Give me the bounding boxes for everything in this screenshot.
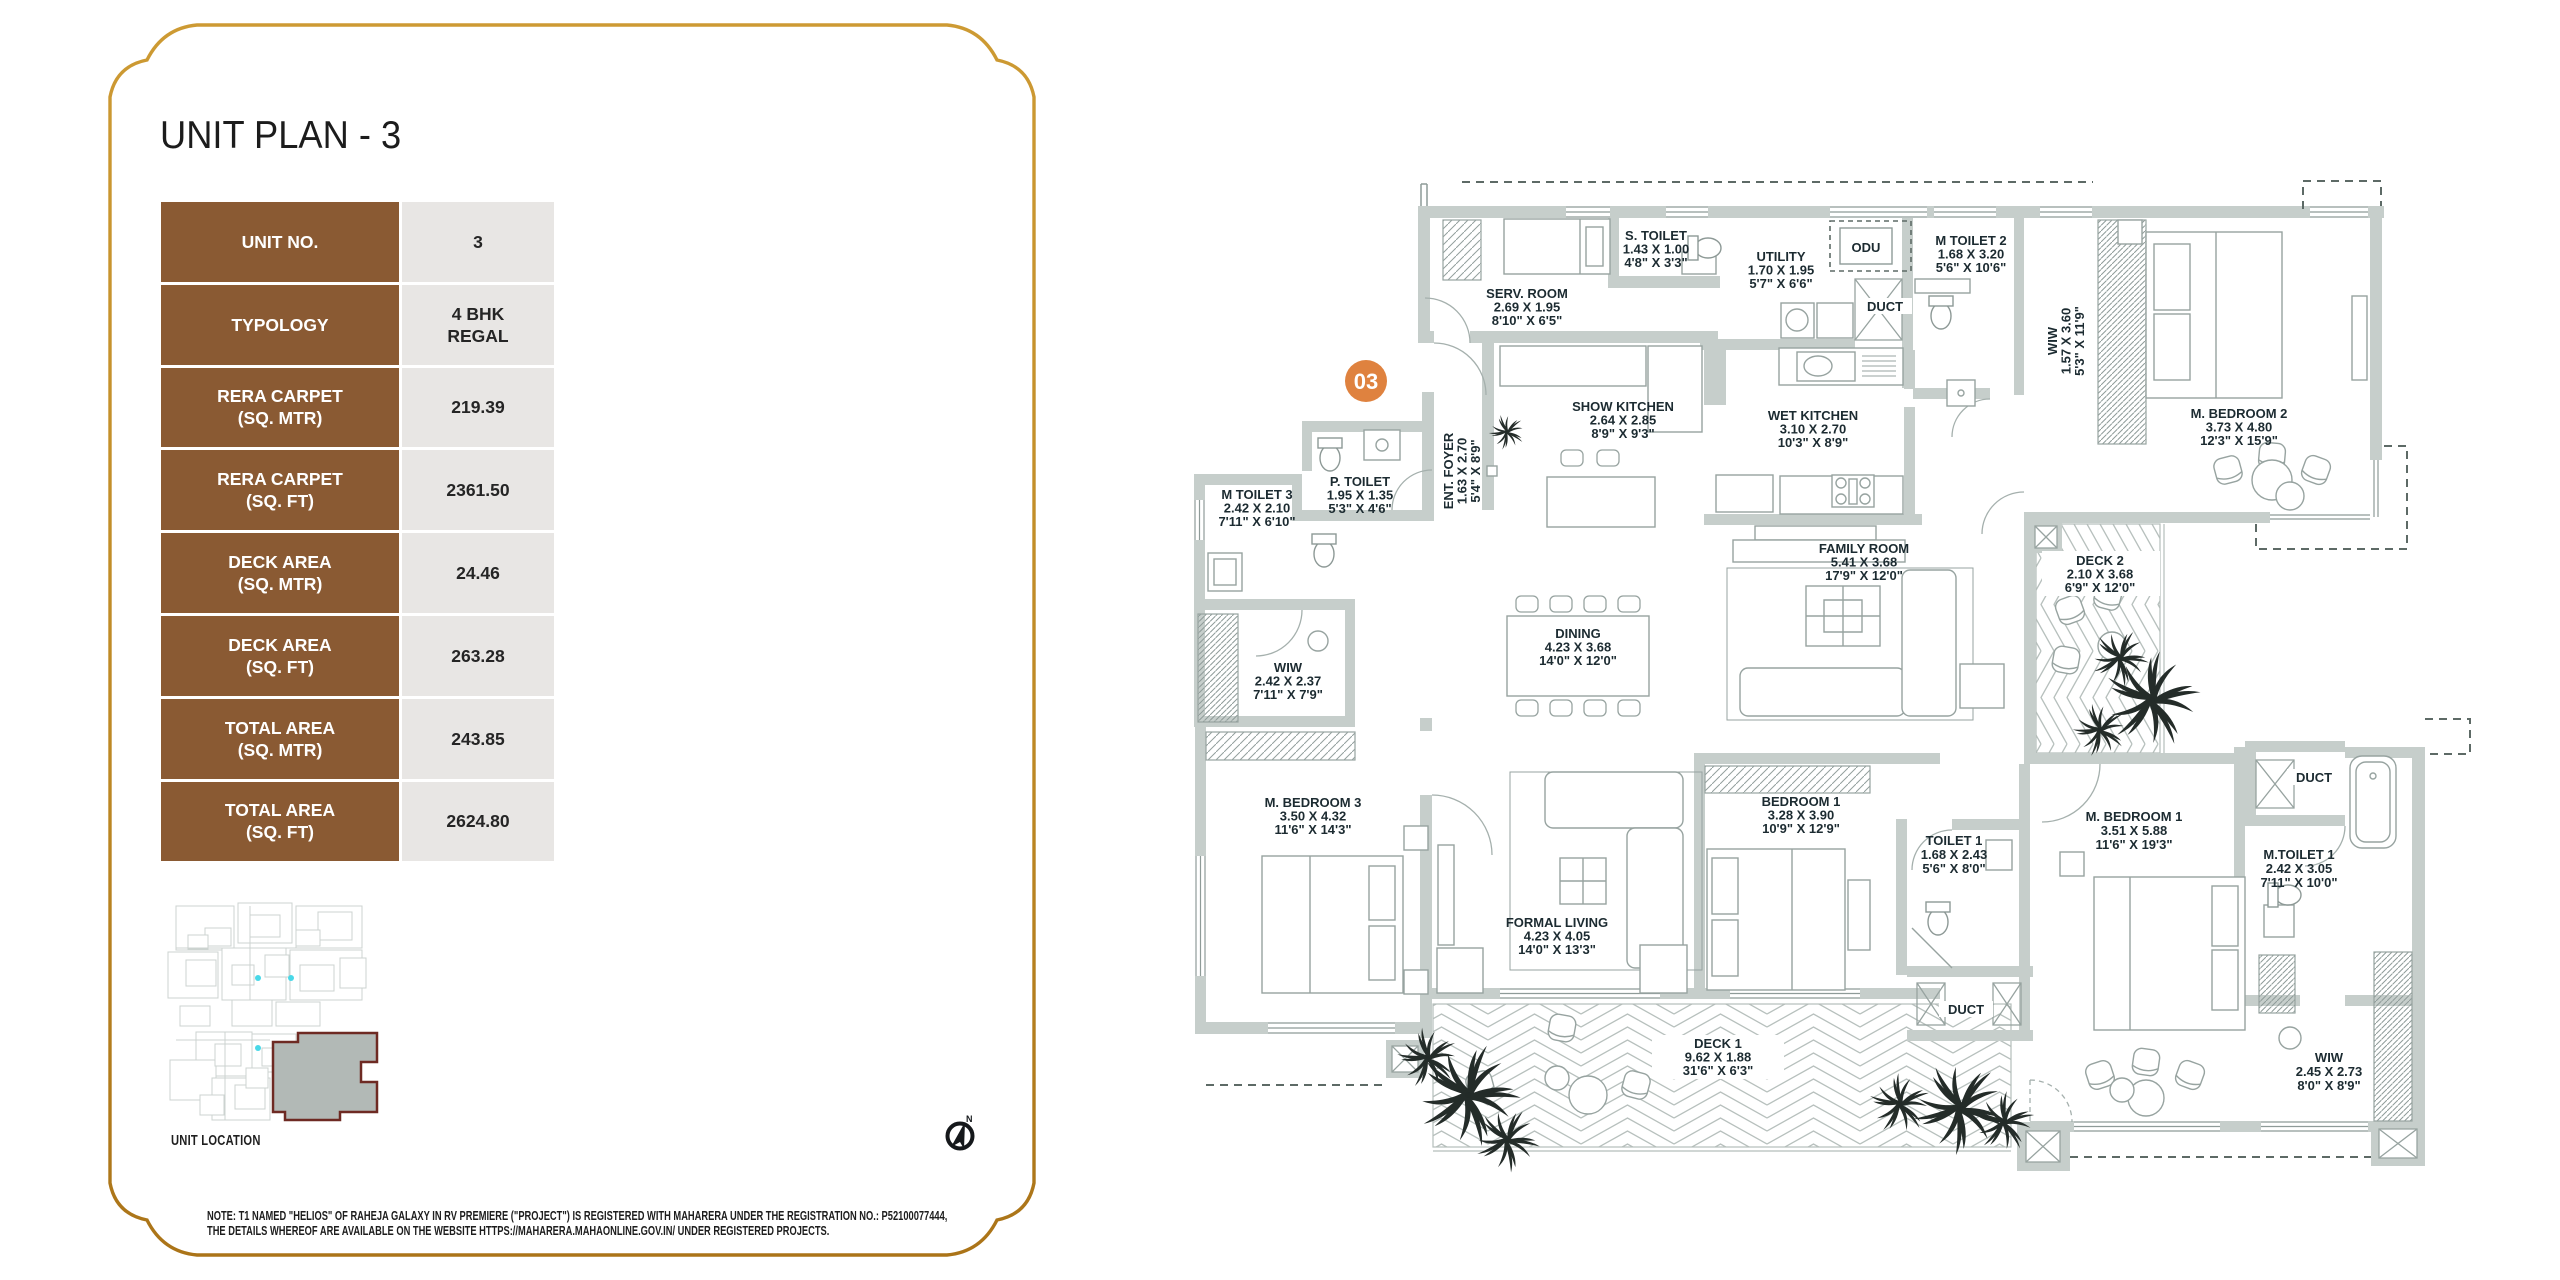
svg-text:8'10" X 6'5": 8'10" X 6'5" [1492, 313, 1563, 328]
svg-text:M. BEDROOM 1: M. BEDROOM 1 [2086, 809, 2183, 824]
svg-text:3.51 X 5.88: 3.51 X 5.88 [2101, 823, 2168, 838]
svg-text:5'6" X 8'0": 5'6" X 8'0" [1922, 861, 1985, 876]
svg-text:2.42 X 3.05: 2.42 X 3.05 [2266, 861, 2333, 876]
svg-text:DUCT: DUCT [1948, 1002, 1984, 1017]
svg-text:TOILET 1: TOILET 1 [1926, 833, 1983, 848]
svg-text:7'11" X 10'0": 7'11" X 10'0" [2260, 875, 2337, 890]
svg-text:7'11" X 6'10": 7'11" X 6'10" [1218, 514, 1295, 529]
svg-text:10'3" X 8'9": 10'3" X 8'9" [1778, 435, 1849, 450]
svg-text:8'9" X 9'3": 8'9" X 9'3" [1591, 426, 1654, 441]
svg-text:5'6" X 10'6": 5'6" X 10'6" [1936, 260, 2007, 275]
svg-text:03: 03 [1354, 369, 1378, 394]
svg-text:M.TOILET 1: M.TOILET 1 [2263, 847, 2334, 862]
svg-text:DUCT: DUCT [2296, 770, 2332, 785]
svg-text:14'0" X 12'0": 14'0" X 12'0" [1539, 653, 1617, 668]
svg-text:17'9" X 12'0": 17'9" X 12'0" [1825, 568, 1903, 583]
svg-text:5'3" X 4'6": 5'3" X 4'6" [1328, 501, 1391, 516]
svg-text:6'9" X 12'0": 6'9" X 12'0" [2065, 580, 2136, 595]
svg-text:5'7" X 6'6": 5'7" X 6'6" [1749, 276, 1812, 291]
svg-text:7'11" X 7'9": 7'11" X 7'9" [1253, 687, 1323, 702]
svg-text:WIW: WIW [2315, 1050, 2344, 1065]
svg-text:N: N [966, 1114, 973, 1124]
svg-text:10'9" X 12'9": 10'9" X 12'9" [1762, 821, 1840, 836]
svg-text:5'4" X 8'9": 5'4" X 8'9" [1468, 439, 1483, 502]
svg-text:1.68 X 2.43: 1.68 X 2.43 [1921, 847, 1988, 862]
svg-text:ODU: ODU [1852, 240, 1881, 255]
svg-text:11'6" X 14'3": 11'6" X 14'3" [1274, 822, 1351, 837]
svg-text:14'0" X 13'3": 14'0" X 13'3" [1518, 942, 1596, 957]
svg-text:31'6" X 6'3": 31'6" X 6'3" [1683, 1063, 1754, 1078]
svg-text:5'3" X 11'9": 5'3" X 11'9" [2072, 306, 2087, 376]
svg-text:11'6" X 19'3": 11'6" X 19'3" [2095, 837, 2172, 852]
svg-text:4'8" X 3'3": 4'8" X 3'3" [1624, 255, 1687, 270]
svg-text:2.45 X 2.73: 2.45 X 2.73 [2296, 1064, 2363, 1079]
svg-text:DUCT: DUCT [1867, 299, 1903, 314]
svg-text:8'0" X 8'9": 8'0" X 8'9" [2297, 1078, 2360, 1093]
svg-text:12'3" X 15'9": 12'3" X 15'9" [2200, 433, 2278, 448]
